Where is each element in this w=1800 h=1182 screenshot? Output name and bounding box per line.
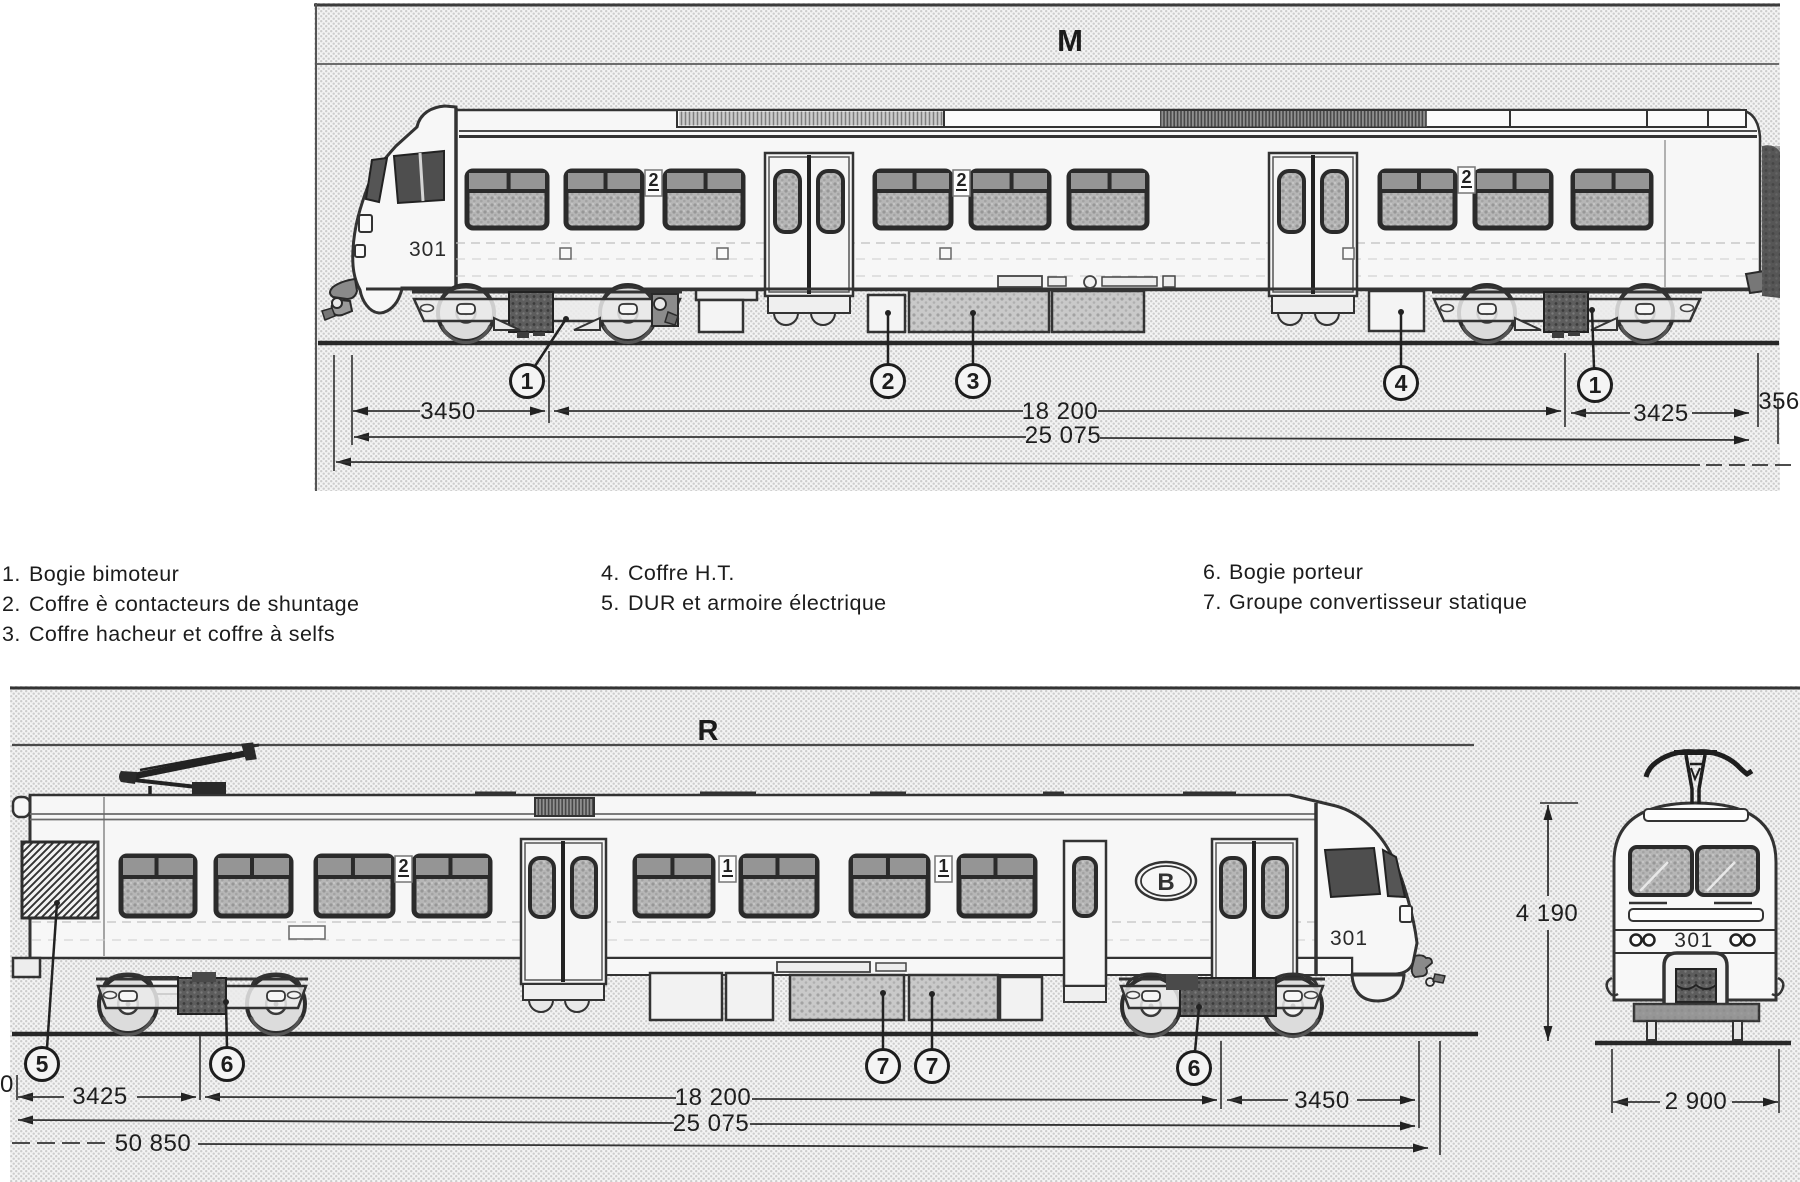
svg-text:4: 4 bbox=[1395, 370, 1408, 396]
svg-text:2.Coffre è contacteurs de shun: 2.Coffre è contacteurs de shuntage bbox=[2, 592, 359, 616]
svg-text:7.Groupe convertisseur statiqu: 7.Groupe convertisseur statique bbox=[1203, 590, 1527, 614]
svg-text:1: 1 bbox=[938, 856, 948, 876]
svg-text:7: 7 bbox=[877, 1053, 890, 1079]
svg-text:3.Coffre hacheur et coffre à s: 3.Coffre hacheur et coffre à selfs bbox=[2, 622, 335, 646]
svg-text:1: 1 bbox=[722, 856, 732, 876]
svg-text:2: 2 bbox=[648, 170, 658, 190]
svg-text:356: 356 bbox=[1758, 388, 1800, 415]
svg-text:2: 2 bbox=[882, 368, 895, 394]
svg-text:2: 2 bbox=[956, 170, 966, 190]
svg-text:R: R bbox=[698, 715, 719, 747]
svg-text:4 190: 4 190 bbox=[1516, 900, 1579, 927]
svg-text:2: 2 bbox=[398, 856, 408, 876]
svg-text:3425: 3425 bbox=[72, 1083, 127, 1110]
svg-text:18 200: 18 200 bbox=[675, 1084, 751, 1111]
svg-text:50 850: 50 850 bbox=[115, 1130, 191, 1157]
svg-text:6: 6 bbox=[221, 1051, 234, 1077]
svg-text:301: 301 bbox=[1674, 929, 1714, 952]
svg-text:B: B bbox=[1157, 869, 1174, 896]
svg-text:0: 0 bbox=[0, 1071, 13, 1098]
svg-text:M: M bbox=[1057, 23, 1083, 58]
svg-text:25 075: 25 075 bbox=[1025, 422, 1101, 449]
svg-text:6: 6 bbox=[1188, 1055, 1201, 1081]
svg-text:5: 5 bbox=[36, 1051, 49, 1077]
svg-text:2: 2 bbox=[1461, 167, 1471, 187]
svg-text:3450: 3450 bbox=[420, 398, 475, 425]
svg-text:25 075: 25 075 bbox=[673, 1110, 749, 1137]
svg-text:18 200: 18 200 bbox=[1022, 398, 1098, 425]
svg-text:3450: 3450 bbox=[1294, 1087, 1349, 1114]
svg-text:301: 301 bbox=[409, 238, 447, 261]
svg-text:3: 3 bbox=[967, 368, 980, 394]
svg-text:1.Bogie bimoteur: 1.Bogie bimoteur bbox=[2, 562, 179, 586]
svg-text:1: 1 bbox=[521, 368, 534, 394]
svg-text:7: 7 bbox=[926, 1053, 939, 1079]
svg-text:3425: 3425 bbox=[1633, 400, 1688, 427]
svg-text:2 900: 2 900 bbox=[1665, 1088, 1728, 1115]
svg-text:301: 301 bbox=[1330, 927, 1368, 950]
svg-text:1: 1 bbox=[1589, 372, 1602, 398]
svg-text:5.DUR et armoire électrique: 5.DUR et armoire électrique bbox=[601, 591, 887, 615]
